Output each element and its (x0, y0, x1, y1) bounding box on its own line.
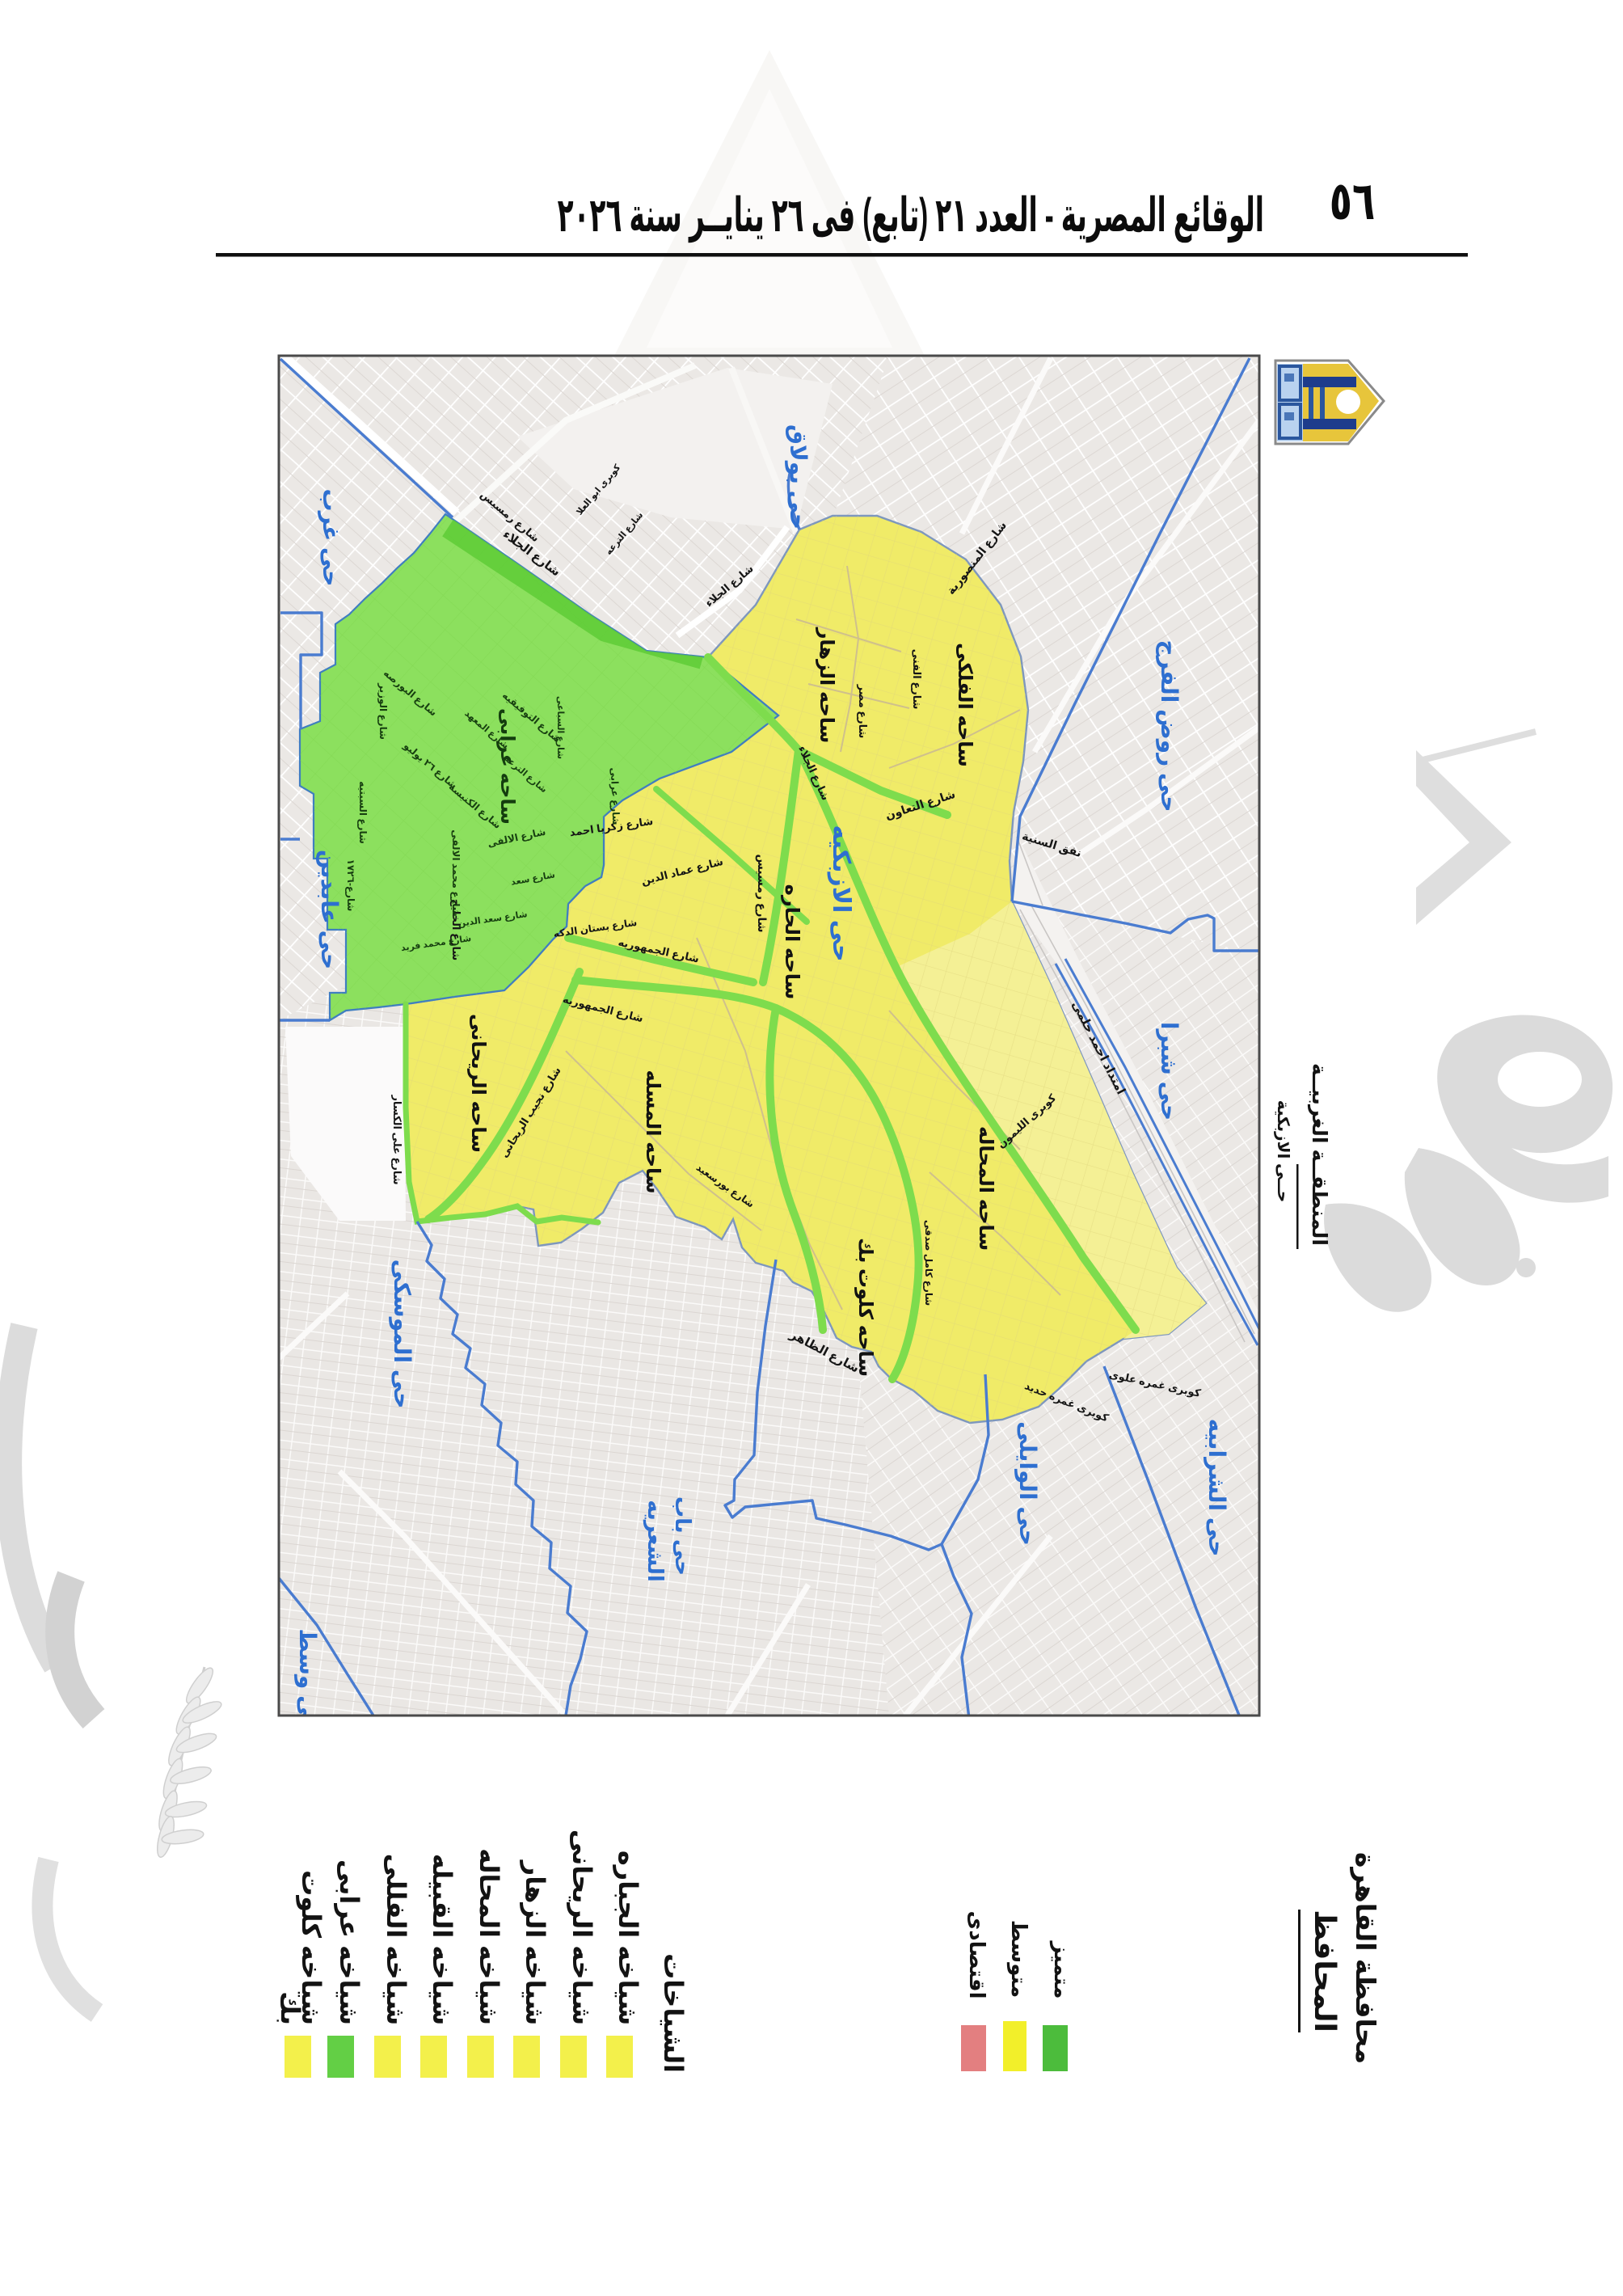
svg-text:شارع الوزير: شارع الوزير (377, 682, 389, 740)
svg-text:شياخه الزهار: شياخه الزهار (520, 1859, 550, 2025)
svg-text:حى باب: حى باب (671, 1496, 695, 1576)
svg-text:شياخه القبيله: شياخه القبيله (428, 1854, 457, 2026)
svg-text:حى غرب: حى غرب (318, 489, 344, 587)
svg-text:شارع كامل صدقى: شارع كامل صدقى (923, 1220, 934, 1306)
svg-text:شياخه الفللى: شياخه الفللى (382, 1854, 411, 2025)
svg-text:٥٦: ٥٦ (1330, 171, 1375, 231)
svg-text:ساحه المحاله: ساحه المحاله (975, 1126, 997, 1251)
svg-text:حى الازبكيه: حى الازبكيه (828, 825, 854, 961)
svg-text:الشعريه: الشعريه (643, 1500, 668, 1582)
svg-text:حى الموسكى: حى الموسكى (389, 1260, 415, 1409)
svg-text:محافظة القاهرة: محافظة القاهرة (1349, 1852, 1381, 2064)
svg-text:حى روض الفرج: حى روض الفرج (1155, 639, 1182, 812)
svg-text:الشياخات: الشياخات (659, 1953, 688, 2073)
svg-text:ساحه الفلكى: ساحه الفلكى (954, 643, 976, 767)
svg-text:ساحه المسله: ساحه المسله (642, 1070, 664, 1193)
svg-text:شارع مصر: شارع مصر (857, 684, 869, 739)
svg-text:شارع محمد الالفى: شارع محمد الالفى (450, 829, 462, 916)
svg-text:الوقائع المصرية - العدد ٢١ (تا: الوقائع المصرية - العدد ٢١ (تابع) فى ٢٦ … (558, 189, 1264, 243)
svg-text:ساحه الزهار: ساحه الزهار (816, 627, 837, 744)
svg-text:شارع السباعى: شارع السباعى (555, 696, 565, 759)
svg-text:حى شبرا: حى شبرا (1156, 1022, 1182, 1121)
svg-text:شياخه المحاله: شياخه المحاله (474, 1848, 504, 2025)
svg-text:ساحه كلوت بك: ساحه كلوت بك (854, 1238, 876, 1377)
svg-text:حى عابدين: حى عابدين (316, 850, 342, 969)
svg-text:شياخه الريحانى: شياخه الريحانى (567, 1830, 597, 2025)
svg-text:اقتصادى: اقتصادى (965, 1910, 989, 1998)
svg-text:المحافظ: المحافظ (1309, 1910, 1342, 2032)
svg-text:ساحه الريحانى: ساحه الريحانى (467, 1014, 489, 1153)
svg-text:شارع على الكسار: شارع على الكسار (391, 1094, 403, 1184)
svg-text:شارع الفنى: شارع الفنى (911, 649, 923, 710)
svg-text:متوسط: متوسط (1006, 1920, 1031, 1998)
svg-text:شارع رمسيس: شارع رمسيس (756, 854, 769, 932)
svg-text:حى بولاق: حى بولاق (785, 424, 811, 530)
svg-text:شارع عرابى: شارع عرابى (609, 767, 622, 825)
svg-text:شياخه عرابى: شياخه عرابى (334, 1859, 364, 2025)
svg-text:حــى الازبكية: حــى الازبكية (1274, 1100, 1292, 1203)
svg-text:بك: بك (276, 1991, 305, 2025)
svg-text:المنطقــة الغربيــة: المنطقــة الغربيــة (1307, 1063, 1330, 1246)
svg-text:شارع السبتيه: شارع السبتيه (357, 781, 369, 844)
svg-text:شياخه الجباره: شياخه الجباره (613, 1851, 643, 2025)
svg-text:حى الوايلى: حى الوايلى (1014, 1421, 1040, 1546)
svg-text:ساحه الحاره: ساحه الحاره (781, 884, 803, 1000)
svg-text:حى الشرابيه: حى الشرابيه (1204, 1419, 1229, 1557)
svg-text:متميز: متميز (1049, 1940, 1074, 1999)
svg-text:شارع-١٧٢٦: شارع-١٧٢٦ (345, 859, 356, 912)
